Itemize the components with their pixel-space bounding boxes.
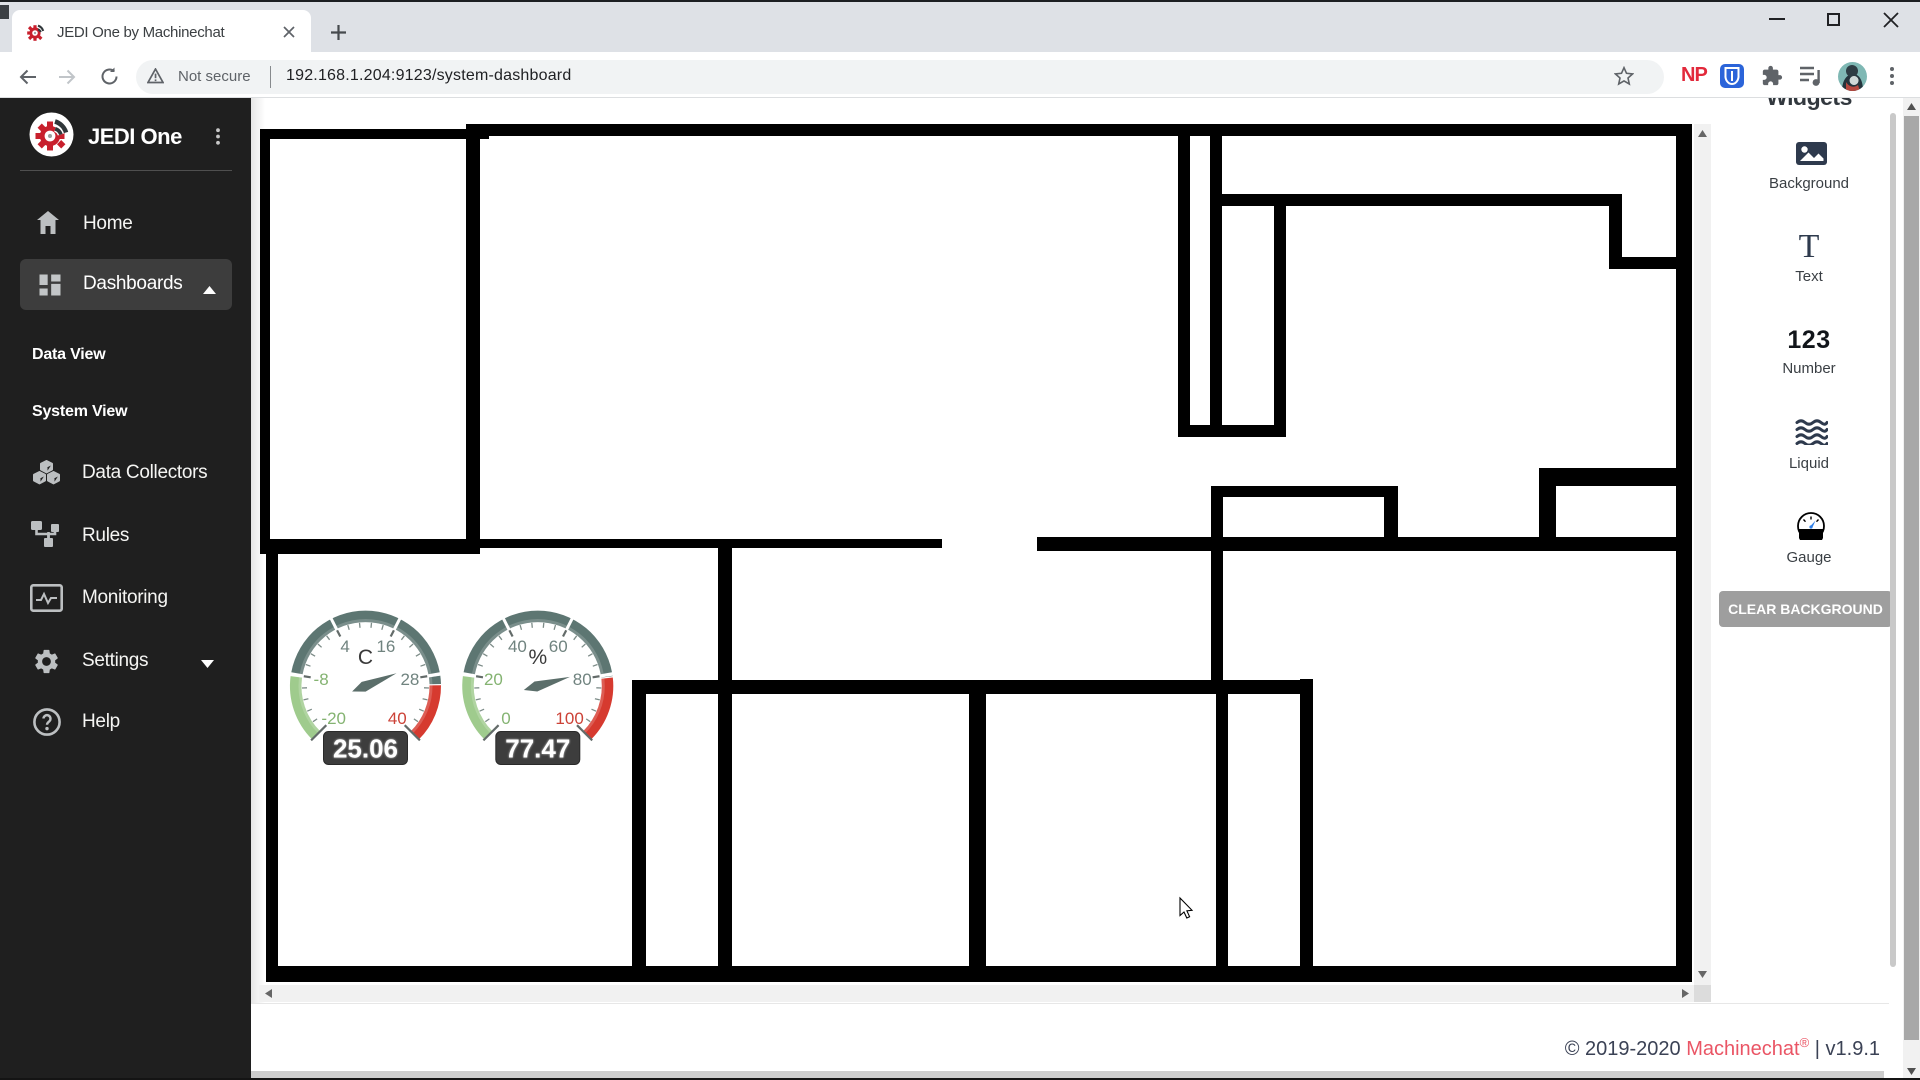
svg-text:40: 40 (508, 637, 527, 656)
svg-text:77.47: 77.47 (505, 734, 570, 764)
svg-text:4: 4 (340, 637, 349, 656)
svg-text:40: 40 (388, 709, 407, 728)
svg-text:20: 20 (484, 670, 503, 689)
svg-text:80: 80 (573, 670, 592, 689)
svg-text:28: 28 (400, 670, 419, 689)
svg-text:16: 16 (376, 637, 395, 656)
svg-text:%: % (528, 646, 547, 669)
svg-text:0: 0 (501, 709, 510, 728)
svg-text:100: 100 (555, 709, 583, 728)
svg-text:-8: -8 (314, 670, 329, 689)
svg-text:-20: -20 (321, 709, 346, 728)
svg-text:25.06: 25.06 (333, 734, 398, 764)
svg-text:60: 60 (549, 637, 568, 656)
svg-text:C: C (358, 646, 373, 669)
